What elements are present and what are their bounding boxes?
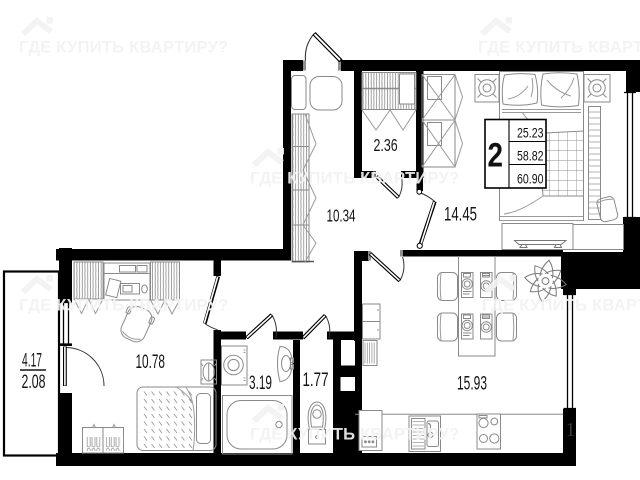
svg-text:10.34: 10.34 [327, 206, 356, 226]
svg-text:2: 2 [488, 137, 504, 175]
svg-text:1.77: 1.77 [303, 370, 329, 391]
svg-text:25.23: 25.23 [517, 125, 544, 141]
svg-text:15.93: 15.93 [457, 373, 487, 395]
svg-text:60.90: 60.90 [517, 171, 544, 187]
svg-text:58.82: 58.82 [517, 148, 544, 164]
svg-text:2.36: 2.36 [374, 135, 398, 155]
svg-text:14.45: 14.45 [444, 204, 477, 226]
svg-text:4.17: 4.17 [22, 350, 42, 372]
svg-text:3.19: 3.19 [249, 373, 272, 394]
svg-text:2.08: 2.08 [22, 371, 46, 393]
svg-text:10.78: 10.78 [136, 351, 166, 373]
svg-text:1: 1 [566, 419, 576, 441]
